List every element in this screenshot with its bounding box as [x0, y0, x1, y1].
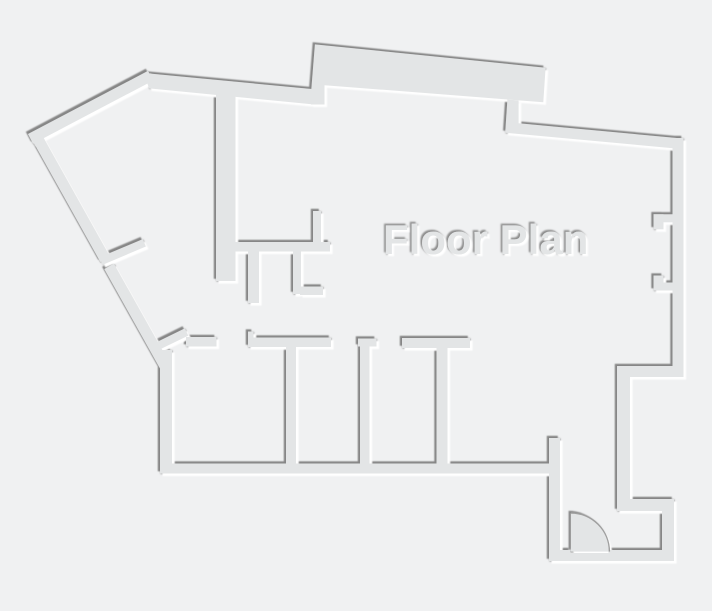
svg-text:Floor Plan: Floor Plan	[383, 216, 588, 263]
